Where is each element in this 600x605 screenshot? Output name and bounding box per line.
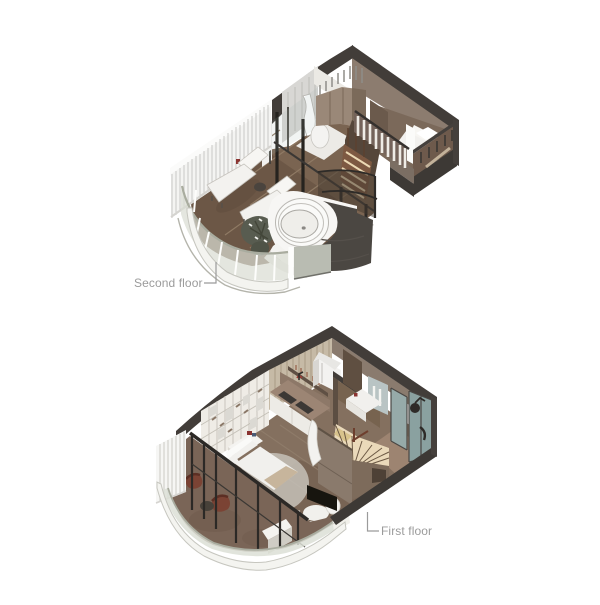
svg-text:Second floor: Second floor (134, 276, 203, 290)
svg-text:First floor: First floor (381, 524, 432, 538)
